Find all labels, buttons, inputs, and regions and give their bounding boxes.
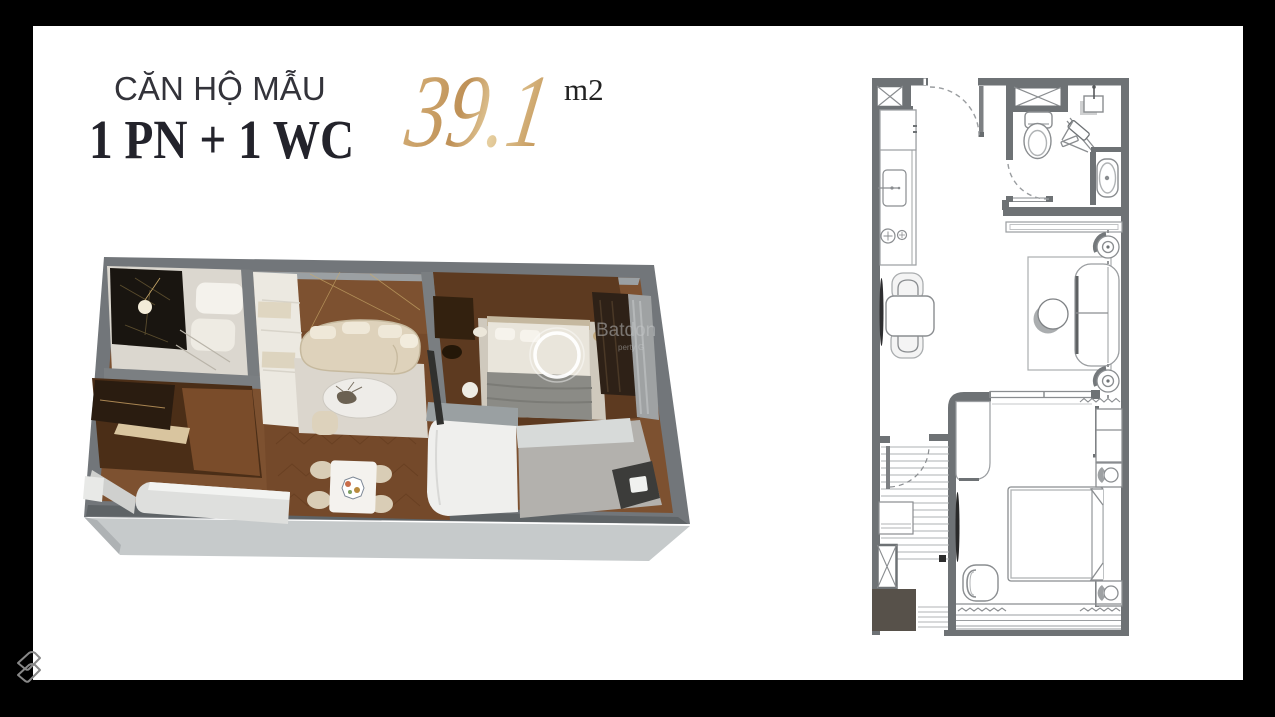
svg-text:perty G: perty G	[618, 343, 644, 352]
svg-text:Batdon: Batdon	[596, 320, 656, 341]
